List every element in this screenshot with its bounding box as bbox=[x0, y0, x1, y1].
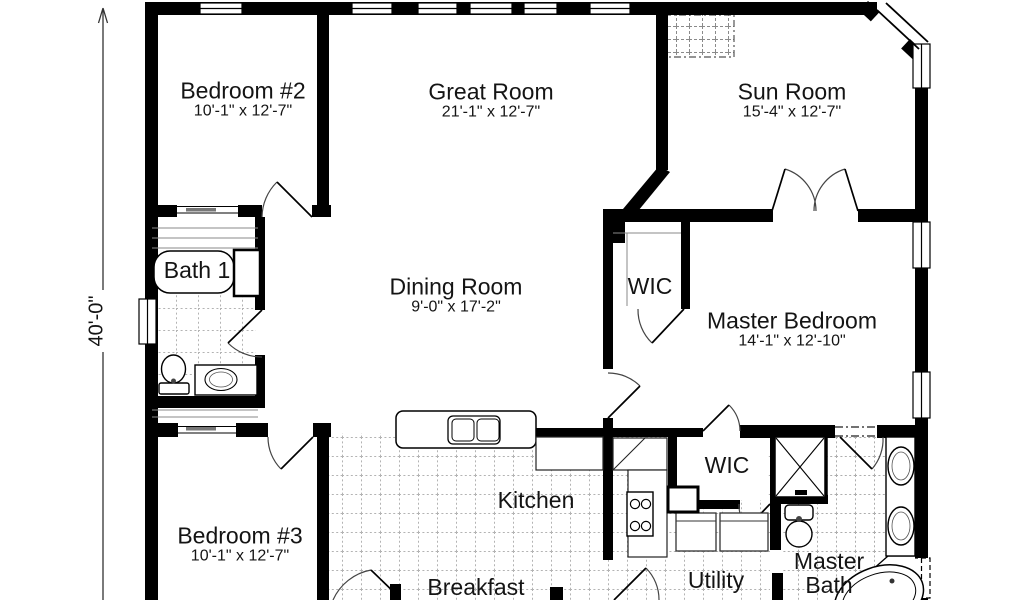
floor-plan: Bedroom #2 10'-1" x 12'-7" Great Room 21… bbox=[0, 0, 1024, 600]
wall-right bbox=[915, 84, 928, 600]
window bbox=[913, 372, 930, 418]
double-vanity bbox=[886, 437, 915, 556]
room-label-wic-lower: WIC bbox=[705, 454, 750, 478]
range bbox=[627, 492, 653, 536]
room-dims: 15'-4" x 12'-7" bbox=[738, 105, 847, 122]
room-name: Master bbox=[794, 550, 864, 574]
window bbox=[352, 3, 392, 14]
room-label-master-bath: Master Bath bbox=[794, 550, 864, 598]
room-name: Great Room bbox=[428, 81, 553, 105]
counter bbox=[536, 437, 603, 470]
window bbox=[470, 3, 512, 14]
wall-kitchen-east bbox=[603, 437, 613, 560]
room-label-bedroom-3: Bedroom #3 10'-1" x 12'-7" bbox=[177, 525, 302, 566]
room-label-bedroom-2: Bedroom #2 10'-1" x 12'-7" bbox=[180, 80, 305, 121]
dimension-label: 40'-0" bbox=[87, 296, 108, 347]
passage-floor-tile bbox=[603, 560, 613, 600]
wall-diagonal bbox=[623, 166, 670, 216]
room-dims: 10'-1" x 12'-7" bbox=[180, 104, 305, 121]
room-name: Bedroom #2 bbox=[180, 80, 305, 104]
room-name: Sun Room bbox=[738, 81, 847, 105]
room-name: Breakfast bbox=[427, 576, 524, 600]
room-name: Bath bbox=[794, 574, 864, 598]
window bbox=[913, 44, 930, 88]
washer bbox=[676, 513, 716, 551]
room-name: Kitchen bbox=[498, 489, 575, 513]
shower bbox=[774, 436, 826, 498]
linen-closet bbox=[234, 250, 260, 296]
wall-top bbox=[152, 2, 877, 15]
wall-wic1-west bbox=[603, 219, 613, 369]
utility-closet bbox=[668, 487, 698, 512]
room-dims: 14'-1" x 12'-10" bbox=[707, 334, 877, 351]
sunroom-hatch-area bbox=[664, 15, 734, 57]
closet-rod bbox=[186, 427, 216, 431]
window bbox=[524, 3, 557, 14]
vanity-sink bbox=[195, 365, 257, 395]
room-name: Dining Room bbox=[390, 276, 523, 300]
room-name: Master Bedroom bbox=[707, 310, 877, 334]
window bbox=[590, 3, 630, 14]
room-label-bath-1: Bath 1 bbox=[164, 259, 231, 283]
window bbox=[200, 3, 242, 14]
window bbox=[913, 222, 930, 268]
wall-bedroom2-east bbox=[317, 15, 329, 207]
room-dims: 10'-1" x 12'-7" bbox=[177, 549, 302, 566]
wall-bath1-south bbox=[145, 396, 265, 408]
room-name: Bedroom #3 bbox=[177, 525, 302, 549]
room-label-dining-room: Dining Room 9'-0" x 17'-2" bbox=[390, 276, 523, 317]
room-name: WIC bbox=[628, 275, 673, 299]
wall-wic2-south bbox=[696, 500, 740, 509]
room-label-utility: Utility bbox=[688, 569, 744, 593]
room-label-kitchen: Kitchen bbox=[498, 489, 575, 513]
room-name: Utility bbox=[688, 569, 744, 593]
window bbox=[139, 299, 156, 344]
toilet bbox=[785, 505, 813, 547]
room-label-great-room: Great Room 21'-1" x 12'-7" bbox=[428, 81, 553, 122]
cased-opening bbox=[835, 427, 877, 436]
room-label-wic-upper: WIC bbox=[628, 275, 673, 299]
room-dims: 21'-1" x 12'-7" bbox=[428, 105, 553, 122]
dryer bbox=[720, 513, 768, 551]
room-label-sun-room: Sun Room 15'-4" x 12'-7" bbox=[738, 81, 847, 122]
room-label-master-bedroom: Master Bedroom 14'-1" x 12'-10" bbox=[707, 310, 877, 351]
room-name: Bath 1 bbox=[164, 259, 231, 283]
kitchen-sink bbox=[448, 416, 500, 444]
corner-bay-window bbox=[877, 3, 928, 49]
room-name: WIC bbox=[705, 454, 750, 478]
window bbox=[418, 3, 457, 14]
closet-rod bbox=[186, 208, 216, 212]
wall-greatroom-sunroom bbox=[656, 15, 668, 170]
wall-wic1-east bbox=[681, 219, 690, 309]
wall-kitchen-north bbox=[527, 428, 703, 437]
room-dims: 9'-0" x 17'-2" bbox=[390, 300, 523, 317]
wall-bedroom3-east bbox=[317, 437, 329, 600]
room-label-breakfast-area: Breakfast Area bbox=[427, 576, 524, 600]
